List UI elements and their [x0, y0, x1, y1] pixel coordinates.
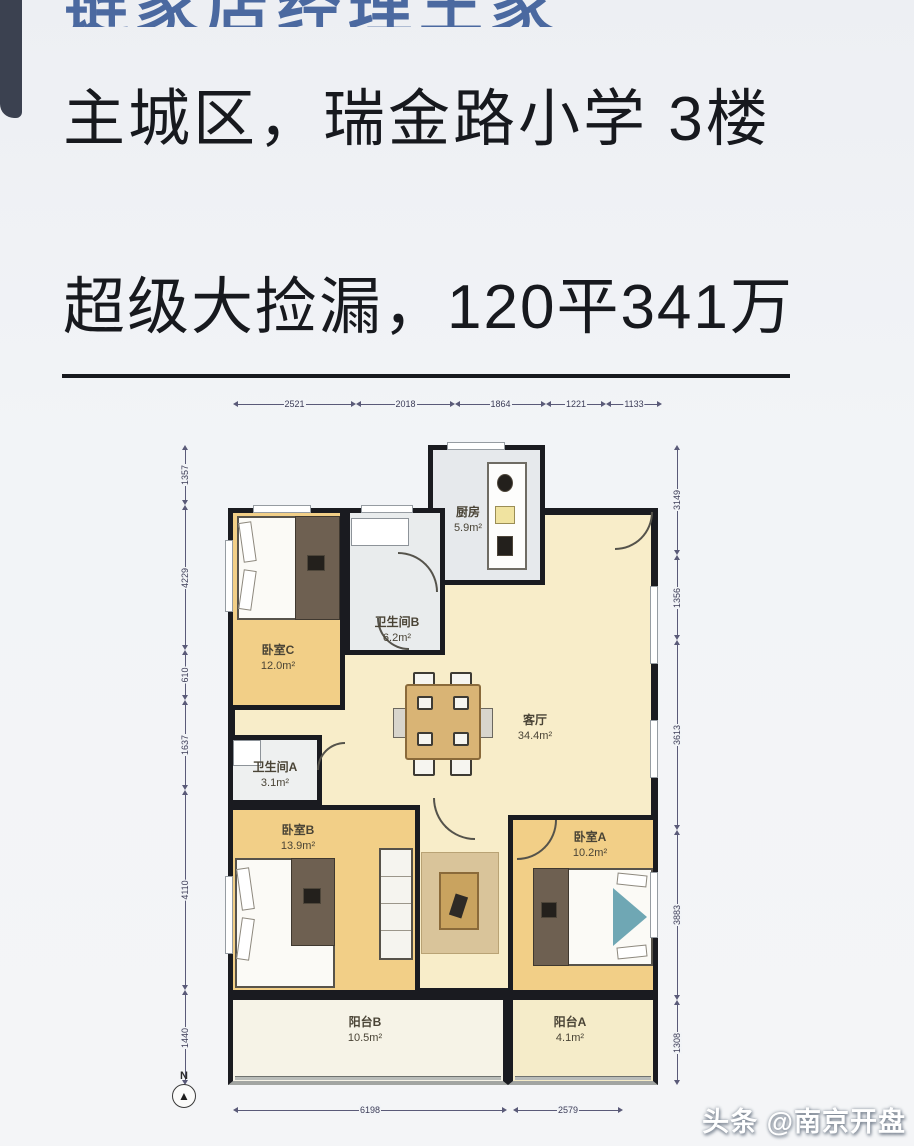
dimension-left-2: 610 — [179, 650, 191, 700]
dimension-right-4: 1308 — [671, 1000, 683, 1085]
dimension-label: 3613 — [672, 724, 682, 746]
dimension-label: 4229 — [180, 566, 190, 588]
table-setting-icon — [417, 732, 433, 746]
dimension-label: 1308 — [672, 1031, 682, 1053]
room-name: 卫生间B — [375, 615, 420, 631]
room-label-kitchen: 厨房 5.9m² — [454, 505, 482, 535]
dimension-label: 1133 — [623, 399, 644, 409]
watermark-toutiao: 头条 @南京开盘 — [702, 1100, 906, 1139]
sofa — [379, 848, 413, 960]
dimension-label: 1440 — [180, 1026, 190, 1048]
room-area: 4.1m² — [554, 1031, 587, 1045]
dimension-right-0: 3149 — [671, 445, 683, 555]
dimension-left-4: 4110 — [179, 790, 191, 990]
window-icon — [650, 720, 658, 778]
table-setting-icon — [453, 732, 469, 746]
stove-icon — [497, 474, 513, 492]
clipped-account-title-text: 链家店经理王家 — [64, 0, 624, 27]
phone-ui-corner-tab — [0, 0, 22, 118]
dimension-left-0: 1357 — [179, 445, 191, 505]
room-area: 10.5m² — [348, 1031, 382, 1045]
dimension-label: 1357 — [180, 464, 190, 486]
sink-basin-icon — [495, 506, 515, 524]
room-name: 卫生间A — [253, 760, 298, 776]
dimension-label: 1356 — [672, 586, 682, 608]
window-icon — [650, 872, 658, 938]
room-label-living: 客厅 34.4m² — [518, 713, 552, 743]
room-label-balcony-a: 阳台A 4.1m² — [554, 1015, 587, 1045]
dimension-label: 2579 — [557, 1105, 579, 1115]
balcony-railing — [515, 1076, 651, 1080]
dimension-top-2: 1864 — [455, 398, 546, 410]
dining-table — [405, 684, 481, 760]
room-area: 10.2m² — [573, 846, 607, 860]
room-label-bedroom-b: 卧室B 13.9m² — [281, 823, 315, 853]
dimension-label: 1637 — [180, 734, 190, 756]
window-icon — [361, 505, 413, 513]
tv-icon — [307, 555, 325, 571]
dimension-bottom-1: 2579 — [513, 1104, 623, 1116]
dimension-top-3: 1221 — [546, 398, 606, 410]
room-label-bedroom-c: 卧室C 12.0m² — [261, 643, 295, 673]
room-area: 5.9m² — [454, 521, 482, 535]
room-label-bathroom-a: 卫生间A 3.1m² — [253, 760, 298, 790]
room-name: 厨房 — [454, 505, 482, 521]
room-label-balcony-b: 阳台B 10.5m² — [348, 1015, 382, 1045]
dimension-label: 6198 — [359, 1105, 381, 1115]
tv-icon — [303, 888, 321, 904]
room-name: 阳台A — [554, 1015, 587, 1031]
room-area: 3.1m² — [253, 776, 298, 790]
compass-needle-icon: ▲ — [172, 1084, 196, 1108]
dining-chair-icon — [413, 758, 435, 776]
dimension-bottom-0: 6198 — [233, 1104, 507, 1116]
dining-chair-icon — [450, 758, 472, 776]
dimension-top-1: 2018 — [356, 398, 455, 410]
room-name: 卧室C — [261, 643, 295, 659]
room-name: 卧室B — [281, 823, 315, 839]
dimension-label: 2018 — [394, 399, 416, 409]
dimension-label: 4110 — [180, 879, 190, 900]
window-icon — [447, 442, 505, 450]
window-icon — [253, 505, 311, 513]
dining-side-chair-icon — [479, 708, 493, 738]
dimension-top-4: 1133 — [606, 398, 662, 410]
room-area: 6.2m² — [375, 631, 420, 645]
dimension-label: 1864 — [489, 399, 511, 409]
window-icon — [650, 586, 658, 664]
dimension-right-1: 1356 — [671, 555, 683, 640]
room-name: 阳台B — [348, 1015, 382, 1031]
room-name: 卧室A — [573, 830, 607, 846]
divider-line — [62, 374, 790, 378]
listing-title-line2: 超级大捡漏，120平341万 — [63, 256, 903, 346]
room-area: 34.4m² — [518, 729, 552, 743]
table-setting-icon — [453, 696, 469, 710]
dimension-right-3: 3883 — [671, 830, 683, 1000]
room-label-bathroom-b: 卫生间B 6.2m² — [375, 615, 420, 645]
compass: N ▲ — [169, 1070, 199, 1108]
dimension-left-3: 1637 — [179, 700, 191, 790]
dimension-left-1: 4229 — [179, 505, 191, 650]
dimension-label: 610 — [180, 666, 190, 683]
dimension-label: 3149 — [672, 489, 682, 511]
bathtub-icon — [351, 518, 409, 546]
dimension-label: 2521 — [283, 399, 305, 409]
window-icon — [225, 876, 233, 954]
room-area: 13.9m² — [281, 839, 315, 853]
room-label-bedroom-a: 卧室A 10.2m² — [573, 830, 607, 860]
compass-north-label: N — [169, 1070, 199, 1082]
window-icon — [225, 540, 233, 612]
floorplan: 客厅 34.4m²厨房 5.9m²卫生间B 6.2m²卧室C 12.0m²卫生间… — [165, 390, 710, 1146]
dimension-top-0: 2521 — [233, 398, 356, 410]
appliance-icon — [497, 536, 513, 556]
room-name: 客厅 — [518, 713, 552, 729]
dimension-label: 3883 — [672, 904, 682, 926]
balcony-railing — [235, 1076, 501, 1080]
table-setting-icon — [417, 696, 433, 710]
dimension-right-2: 3613 — [671, 640, 683, 830]
clipped-account-title: 链家店经理王家 — [64, 0, 624, 27]
listing-title-line1: 主城区，瑞金路小学 3楼 — [63, 68, 893, 158]
dimension-label: 1221 — [565, 399, 587, 409]
tv-icon — [541, 902, 557, 918]
room-area: 12.0m² — [261, 659, 295, 673]
